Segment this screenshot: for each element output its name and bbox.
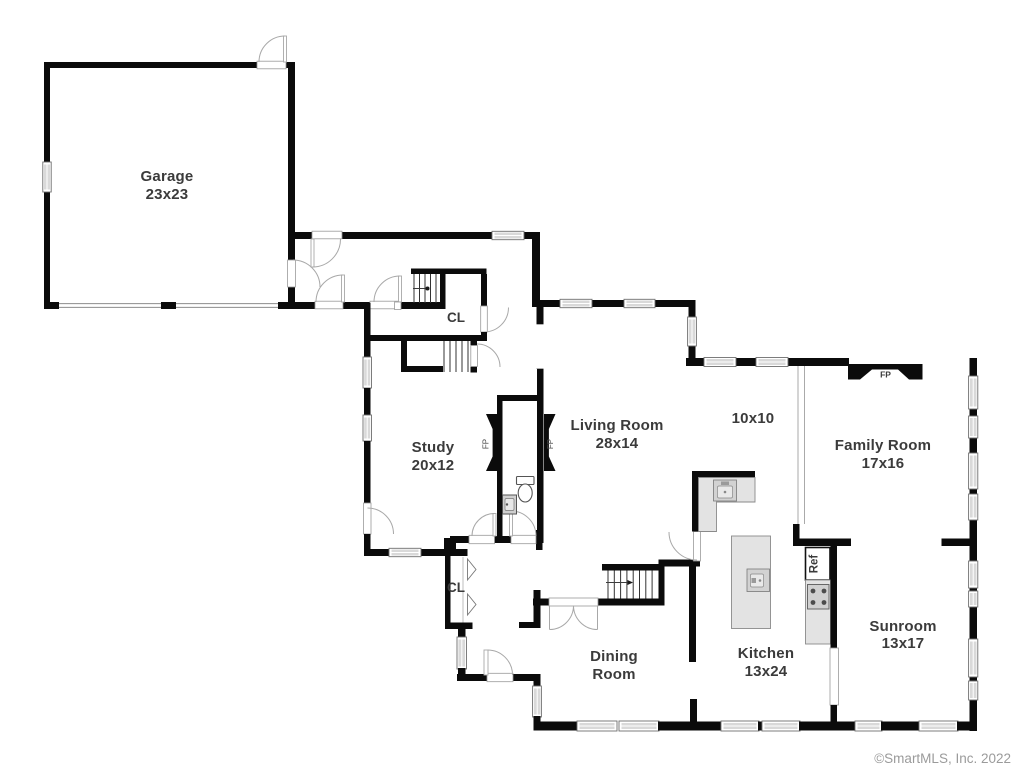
svg-text:13x24: 13x24	[745, 663, 788, 680]
svg-text:Dining: Dining	[590, 648, 638, 665]
svg-text:Room: Room	[592, 666, 635, 683]
svg-text:FP: FP	[546, 439, 555, 449]
svg-text:Living Room: Living Room	[570, 417, 663, 434]
svg-text:FP: FP	[482, 439, 491, 449]
svg-text:10x10: 10x10	[732, 410, 775, 427]
svg-text:Kitchen: Kitchen	[738, 645, 794, 662]
svg-text:20x12: 20x12	[412, 457, 455, 474]
svg-text:Garage: Garage	[141, 168, 194, 185]
svg-text:13x17: 13x17	[882, 635, 925, 652]
svg-text:©SmartMLS, Inc. 2022: ©SmartMLS, Inc. 2022	[874, 751, 1011, 766]
svg-text:Ref: Ref	[809, 555, 821, 574]
svg-text:Family Room: Family Room	[835, 437, 931, 454]
svg-text:28x14: 28x14	[596, 435, 639, 452]
svg-text:FP: FP	[880, 370, 891, 380]
svg-text:CL: CL	[447, 580, 465, 595]
svg-text:CL: CL	[447, 310, 465, 325]
svg-text:Study: Study	[412, 439, 455, 456]
svg-text:Sunroom: Sunroom	[869, 618, 936, 635]
svg-text:23x23: 23x23	[146, 186, 189, 203]
svg-text:17x16: 17x16	[862, 455, 905, 472]
